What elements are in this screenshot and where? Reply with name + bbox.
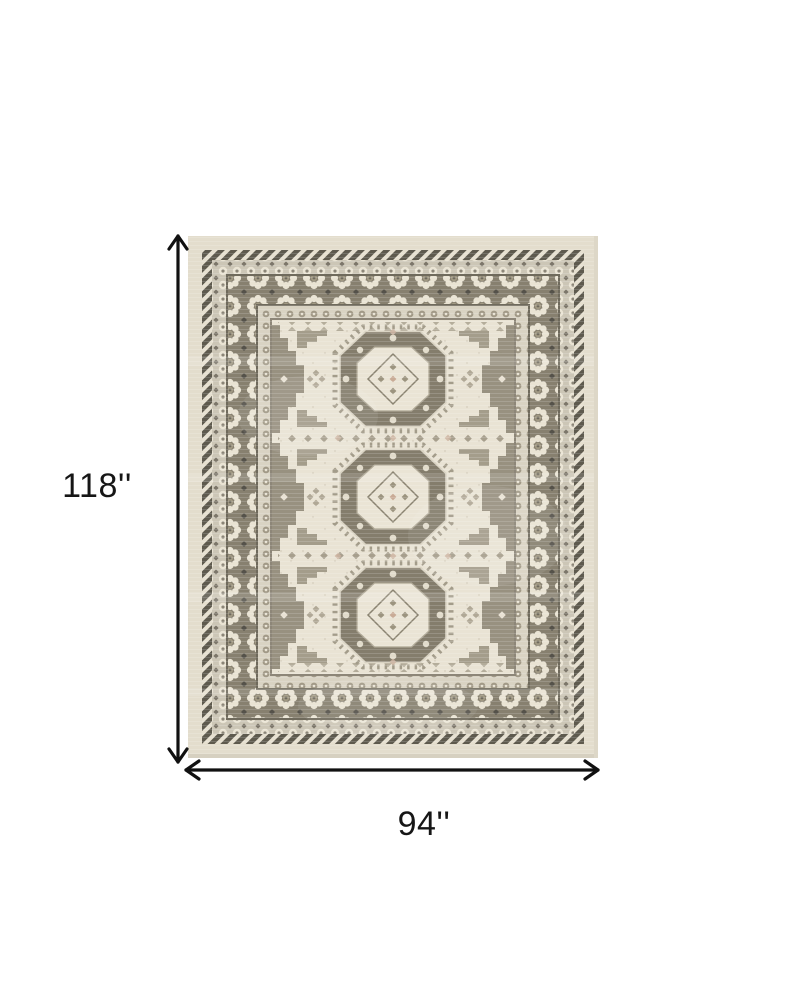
rug-photo [188,236,598,758]
product-dimension-diagram: 118'' 94'' [0,0,786,1000]
width-dimension-arrow [172,750,608,790]
rug-illustration [188,236,598,758]
height-dimension-label: 118'' [42,468,152,505]
width-dimension-label: 94'' [369,806,479,843]
height-dimension-arrow [158,226,198,772]
